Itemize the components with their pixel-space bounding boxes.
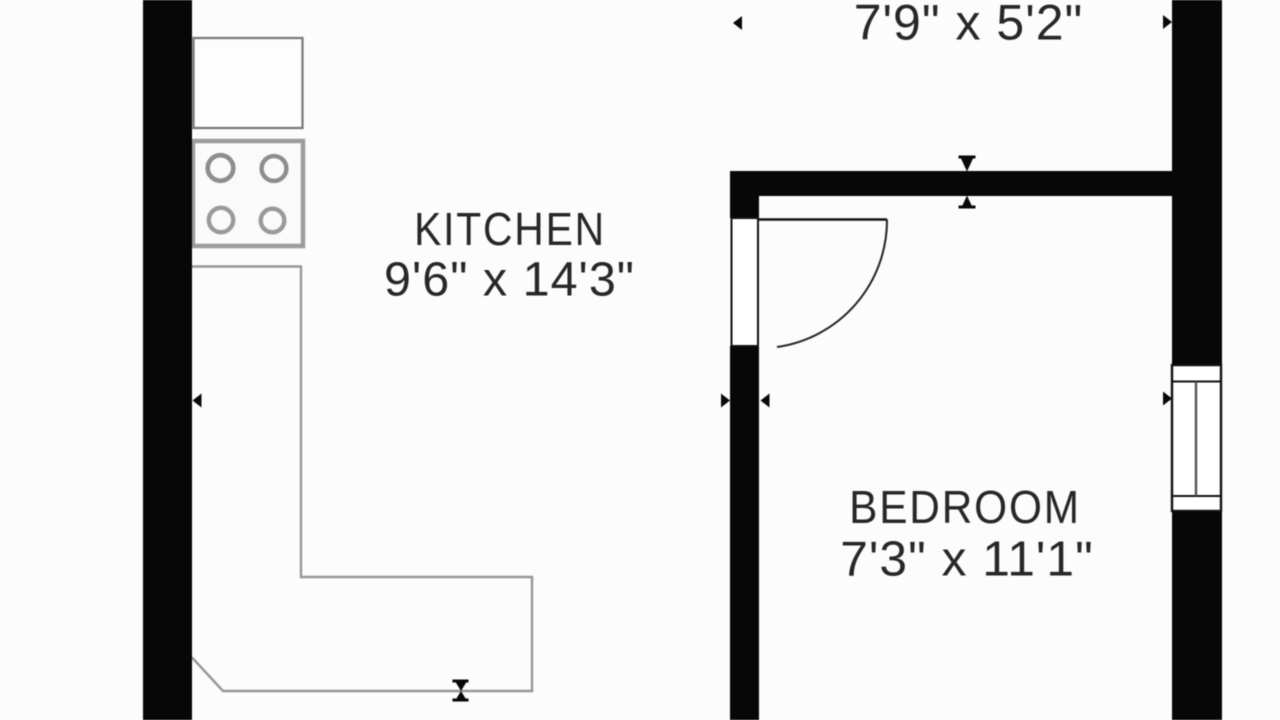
svg-text:KITCHEN: KITCHEN: [414, 205, 606, 256]
svg-text:7'3" x 11'1": 7'3" x 11'1": [840, 532, 1094, 587]
svg-text:BEDROOM: BEDROOM: [849, 482, 1081, 533]
svg-text:9'6" x 14'3": 9'6" x 14'3": [384, 253, 635, 307]
svg-text:7'9" x 5'2": 7'9" x 5'2": [854, 0, 1084, 51]
